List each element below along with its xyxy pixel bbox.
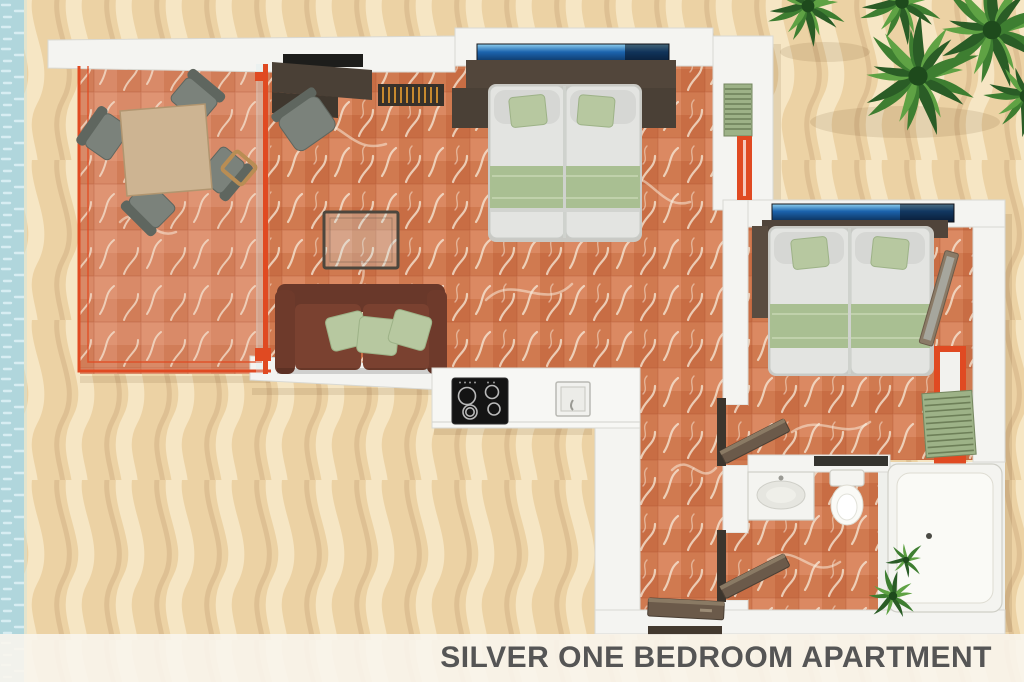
- green-pillow: [509, 94, 548, 128]
- washbasin-inner: [766, 487, 796, 503]
- louvre-wardrobe: [922, 390, 976, 457]
- green-pillow: [577, 94, 615, 127]
- sofa: [275, 284, 447, 374]
- hall-wall-mid: [723, 465, 748, 533]
- kitchen-side-wall: [595, 428, 640, 610]
- nightstand-left: [452, 88, 488, 128]
- toilet-tank: [830, 470, 864, 486]
- red-door-line: [743, 140, 746, 196]
- sink-basin: [561, 387, 585, 411]
- glass-partition: [256, 64, 263, 374]
- top-wall: [48, 36, 455, 72]
- sideboard-body: [378, 84, 444, 106]
- balcony-door-glass: [940, 352, 960, 396]
- floor-plan-render: [0, 0, 1024, 682]
- dining-table: [120, 104, 212, 196]
- entry-door: [648, 598, 725, 620]
- wing-right-wall: [973, 227, 1005, 462]
- green-pillow: [791, 236, 830, 270]
- partition-bottom-cap: [255, 348, 271, 361]
- window-bedroom-dark: [900, 204, 954, 222]
- green-pillow: [871, 236, 910, 270]
- bed-fold: [490, 208, 640, 212]
- bed-gap: [563, 86, 566, 238]
- bed-side-rail: [752, 226, 768, 318]
- sideboard: [378, 84, 444, 106]
- basin-faucet: [779, 476, 784, 481]
- coffee-table: [324, 212, 398, 268]
- hall-wall-upper: [723, 200, 748, 405]
- nightstand-right: [640, 88, 676, 128]
- sofa-arm-right: [427, 290, 447, 374]
- bed-gap: [848, 228, 851, 374]
- sofa-arm-left: [275, 290, 295, 374]
- toilet-seat: [837, 494, 857, 520]
- glass-table: [324, 212, 398, 268]
- floor-plan-scene: SILVER ONE BEDROOM APARTMENT: [0, 0, 1024, 682]
- apartment-title: SILVER ONE BEDROOM APARTMENT: [440, 643, 992, 673]
- partition-top-cap: [255, 72, 268, 81]
- sea-water-edge: [0, 0, 24, 682]
- bathtub-drain: [926, 533, 932, 539]
- sofa-shadow: [277, 368, 447, 374]
- caption-bar: SILVER ONE BEDROOM APARTMENT: [0, 634, 1024, 682]
- shower-glass: [814, 456, 888, 466]
- partition-frame: [263, 64, 268, 374]
- bathtub-inner: [897, 473, 993, 603]
- kitchenette: [432, 368, 640, 428]
- shoreline: [24, 0, 27, 682]
